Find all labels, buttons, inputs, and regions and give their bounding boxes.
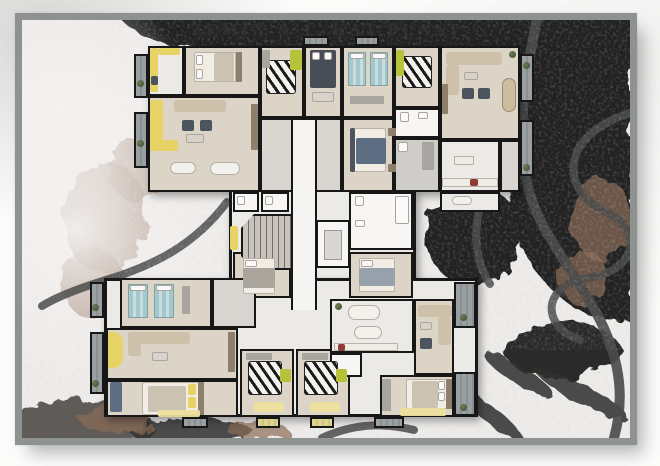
dining-table [170,162,196,174]
pillow [130,285,146,291]
page-background: ZEMİN & 1. KAT PLANI [0,0,660,466]
tv-unit [251,104,258,150]
toilet [265,196,273,205]
corner-sofa [446,52,502,65]
tv-unit [228,332,235,372]
stove [470,179,478,186]
plant-icon [335,303,342,310]
dresser [110,382,122,412]
armchair [182,120,194,131]
toilet [237,196,245,205]
green-chaise [290,50,302,70]
tv-unit [442,84,448,114]
stove [338,344,345,351]
dining-table [348,305,380,320]
bed-blanket [214,53,234,81]
wardrobe [382,379,391,411]
sink [418,112,428,119]
dresser [246,353,272,360]
pillow [438,381,445,390]
shelf [422,142,434,170]
bathtub [395,196,409,224]
toilet [355,196,364,206]
corner-sofa [438,317,451,345]
coffee-table [464,72,478,80]
dresser [302,353,328,360]
balcony-s-bottom-3 [310,417,334,428]
nightstand [388,128,396,136]
dining-table [502,78,516,112]
plant-icon [92,304,99,311]
dresser [182,286,190,314]
kitchen-island [454,156,474,165]
pillow [312,52,320,60]
plant-icon [523,164,530,171]
coffee-table [420,322,432,330]
plant-icon [523,62,530,69]
stove [151,76,158,85]
pillow [196,69,203,79]
zebra-rug [248,361,282,395]
pillow [372,53,386,59]
pillow [350,53,364,59]
corner-sofa [418,305,452,317]
nightstand [388,164,396,172]
plant-icon [509,51,516,58]
toilet [400,112,409,122]
kitchen-counter [230,226,238,250]
yellow-rug [400,408,446,416]
yellow-rug [158,410,200,417]
plant-icon [92,380,99,387]
bed-headboard [236,52,242,82]
bed-headboard [446,379,452,409]
zebra-rug [304,361,338,395]
sectional-sofa [128,332,141,356]
sink [355,220,365,227]
plant-icon [460,404,467,411]
coffee-table [152,352,168,361]
balcony-s-bottom-4 [374,417,404,428]
bed-blanket [243,268,275,288]
pillow [188,384,196,395]
site-plan-scene: ZEMİN & 1. KAT PLANI [22,20,630,438]
balcony-sw-1 [90,282,104,318]
dresser [350,96,384,104]
plant-icon [137,80,144,87]
green-chair [336,369,347,382]
sofa [174,100,226,112]
pillow [196,55,203,65]
plant-icon [460,314,467,321]
elevator-cab [324,230,342,260]
armchair [420,338,432,349]
pillow [324,52,332,60]
room-entry-ne [500,140,520,192]
yellow-rug [254,402,284,412]
bed-headboard [350,128,355,172]
green-wardrobe [396,50,404,76]
bed-blanket [359,268,395,286]
bed-blanket [148,386,186,412]
pillow [188,397,196,408]
balcony-se-1 [454,282,476,328]
armchair [200,120,212,131]
balcony-nw-1 [134,54,148,98]
pillow [245,260,257,267]
dining-table [354,326,382,339]
kitchen-counter [158,48,180,55]
rug [312,92,334,102]
balcony-s-bottom-1 [182,417,208,428]
green-chair [280,369,291,382]
balcony-s-bottom-2 [256,417,280,428]
yellow-corner-sofa [150,140,178,151]
yellow-curved-sofa [108,332,123,368]
pillow [361,260,373,267]
table [452,196,472,205]
armchair [462,88,474,99]
washer [398,142,408,152]
coffee-table [186,134,204,143]
yellow-rug [310,402,340,412]
zebra-rug [402,56,432,88]
armchair [478,88,490,99]
pillow [156,285,172,291]
pillow [438,392,445,401]
central-corridor [291,120,317,310]
picture-frame: ZEMİN & 1. KAT PLANI [15,13,637,445]
dining-table [210,162,240,175]
kitchen-counter [150,48,158,92]
plan-title: ZEMİN & 1. KAT PLANI [22,20,630,40]
dresser [262,50,270,68]
bed-blanket [356,138,386,164]
bed-blanket [412,381,438,408]
plant-icon [137,140,144,147]
